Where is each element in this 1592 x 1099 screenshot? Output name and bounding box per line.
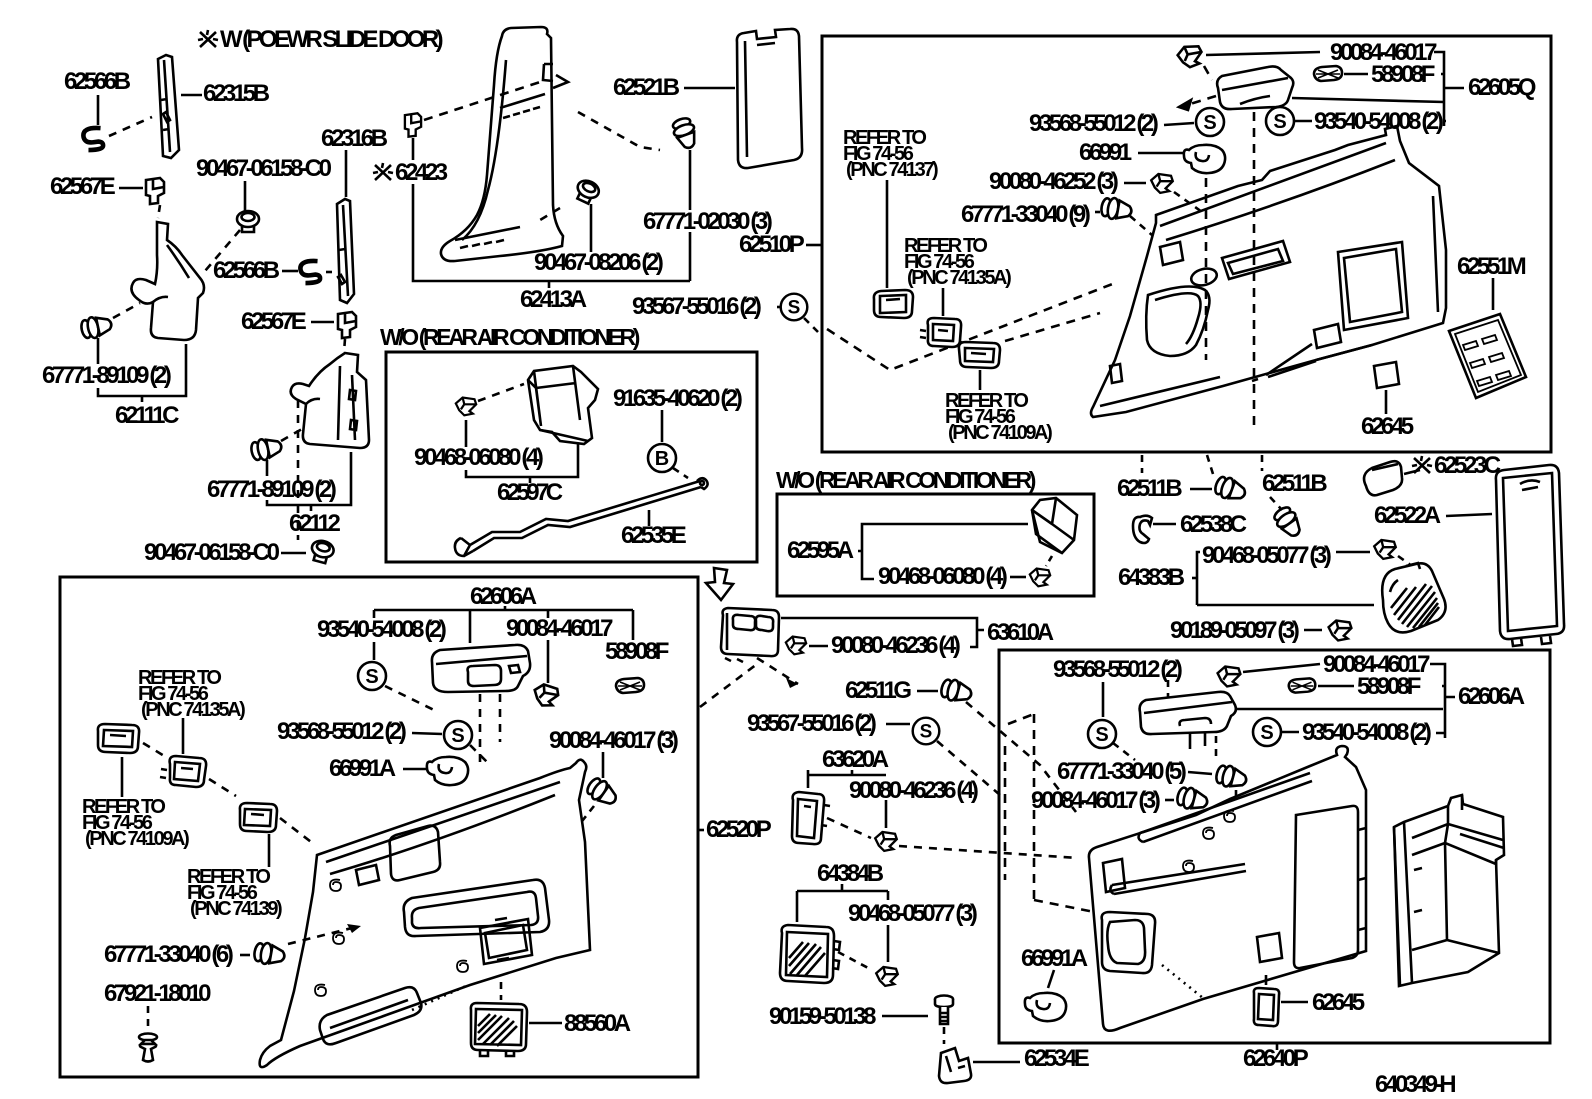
svg-text:62535E: 62535E <box>621 522 687 549</box>
svg-text:66991: 66991 <box>1079 139 1132 166</box>
svg-text:63620A: 63620A <box>822 746 889 773</box>
svg-text:62534E: 62534E <box>1024 1045 1090 1072</box>
svg-text:93568-55012 (2): 93568-55012 (2) <box>1053 656 1182 683</box>
svg-text:90159-50138: 90159-50138 <box>769 1003 876 1030</box>
svg-text:90084-46017 (3): 90084-46017 (3) <box>1031 787 1160 814</box>
svg-text:62597C: 62597C <box>497 479 563 506</box>
svg-text:(PNC 74139): (PNC 74139) <box>190 898 282 920</box>
svg-text:62566B: 62566B <box>213 257 280 284</box>
svg-text:58908F: 58908F <box>1371 61 1435 88</box>
svg-text:90080-46252 (3): 90080-46252 (3) <box>989 168 1118 195</box>
svg-text:(PNC 74135A): (PNC 74135A) <box>141 699 245 721</box>
svg-text:W/O (REAR AIR CONDITIONER): W/O (REAR AIR CONDITIONER) <box>380 324 640 350</box>
svg-text:62645: 62645 <box>1361 413 1414 440</box>
svg-text:67771-89109 (2): 67771-89109 (2) <box>42 362 171 389</box>
svg-text:63610A: 63610A <box>987 619 1054 646</box>
svg-text:66991A: 66991A <box>329 755 396 782</box>
svg-text:62567E: 62567E <box>241 308 307 335</box>
svg-text:62521B: 62521B <box>613 74 680 101</box>
svg-text:62645: 62645 <box>1312 989 1365 1016</box>
svg-text:62413A: 62413A <box>520 286 587 313</box>
svg-text:93567-55016 (2): 93567-55016 (2) <box>632 293 761 320</box>
svg-text:62567E: 62567E <box>50 173 116 200</box>
svg-text:62423: 62423 <box>395 159 448 186</box>
svg-text:90468-06080 (4): 90468-06080 (4) <box>414 444 543 471</box>
svg-text:90189-05097 (3): 90189-05097 (3) <box>1170 617 1299 644</box>
svg-text:62510P: 62510P <box>739 231 805 258</box>
svg-text:(PNC 74137): (PNC 74137) <box>846 159 938 181</box>
svg-text:62511G: 62511G <box>845 677 911 704</box>
svg-text:67771-33040 (5): 67771-33040 (5) <box>1057 758 1186 785</box>
svg-text:62566B: 62566B <box>64 68 131 95</box>
svg-text:62538C: 62538C <box>1180 511 1247 538</box>
svg-text:62511B: 62511B <box>1262 470 1327 497</box>
svg-text:90468-06080 (4): 90468-06080 (4) <box>878 563 1007 590</box>
svg-text:93540-54008 (2): 93540-54008 (2) <box>1314 108 1443 135</box>
svg-text:(PNC 74109A): (PNC 74109A) <box>85 828 189 850</box>
svg-text:64383B: 64383B <box>1118 564 1185 591</box>
svg-text:90080-46236 (4): 90080-46236 (4) <box>849 777 978 804</box>
svg-text:90467-06158-C0: 90467-06158-C0 <box>196 155 332 182</box>
svg-text:67771-89109 (2): 67771-89109 (2) <box>207 476 336 503</box>
svg-text:62522A: 62522A <box>1374 502 1441 529</box>
svg-text:90467-06158-C0: 90467-06158-C0 <box>144 539 280 566</box>
svg-text:62511B: 62511B <box>1117 475 1182 502</box>
svg-text:93567-55016 (2): 93567-55016 (2) <box>747 710 876 737</box>
svg-text:W/O (REAR AIR CONDITIONER): W/O (REAR AIR CONDITIONER) <box>776 467 1036 493</box>
svg-text:67771-33040 (6): 67771-33040 (6) <box>104 941 233 968</box>
svg-text:62595A: 62595A <box>787 537 854 564</box>
svg-text:58908F: 58908F <box>1357 673 1421 700</box>
svg-text:62111C: 62111C <box>115 402 179 429</box>
svg-text:W (POEWR SLIDE DOOR): W (POEWR SLIDE DOOR) <box>220 26 443 53</box>
svg-text:62605Q: 62605Q <box>1468 74 1536 101</box>
svg-text:62523C: 62523C <box>1434 452 1501 479</box>
svg-text:62606A: 62606A <box>1458 683 1525 710</box>
svg-text:90080-46236 (4): 90080-46236 (4) <box>831 632 960 659</box>
svg-text:90084-46017 (3): 90084-46017 (3) <box>549 727 678 754</box>
svg-text:88560A: 88560A <box>564 1010 631 1037</box>
svg-text:62316B: 62316B <box>321 125 388 152</box>
svg-text:90468-05077 (3): 90468-05077 (3) <box>848 900 977 927</box>
svg-text:62640P: 62640P <box>1243 1045 1309 1072</box>
svg-text:62520P: 62520P <box>706 816 772 843</box>
svg-text:93540-54008 (2): 93540-54008 (2) <box>1302 719 1431 746</box>
svg-text:93568-55012 (2): 93568-55012 (2) <box>277 718 406 745</box>
svg-text:90467-08206 (2): 90467-08206 (2) <box>534 249 663 276</box>
svg-text:62606A: 62606A <box>470 583 537 610</box>
svg-text:(PNC 74135A): (PNC 74135A) <box>907 267 1011 289</box>
svg-text:66991A: 66991A <box>1021 945 1088 972</box>
svg-text:67771-33040 (9): 67771-33040 (9) <box>961 201 1090 228</box>
svg-text:67921-18010: 67921-18010 <box>104 980 211 1007</box>
svg-text:93568-55012 (2): 93568-55012 (2) <box>1029 110 1158 137</box>
svg-text:90468-05077 (3): 90468-05077 (3) <box>1202 542 1331 569</box>
svg-text:(PNC 74109A): (PNC 74109A) <box>948 422 1052 444</box>
svg-text:90084-46017: 90084-46017 <box>506 615 613 642</box>
svg-text:91635-40620 (2): 91635-40620 (2) <box>613 385 742 412</box>
svg-text:62551M: 62551M <box>1457 253 1526 280</box>
svg-text:62315B: 62315B <box>203 80 270 107</box>
svg-text:640349-H: 640349-H <box>1375 1071 1455 1098</box>
svg-text:93540-54008 (2): 93540-54008 (2) <box>317 616 446 643</box>
svg-text:64384B: 64384B <box>817 860 884 887</box>
svg-text:58908F: 58908F <box>605 638 669 665</box>
